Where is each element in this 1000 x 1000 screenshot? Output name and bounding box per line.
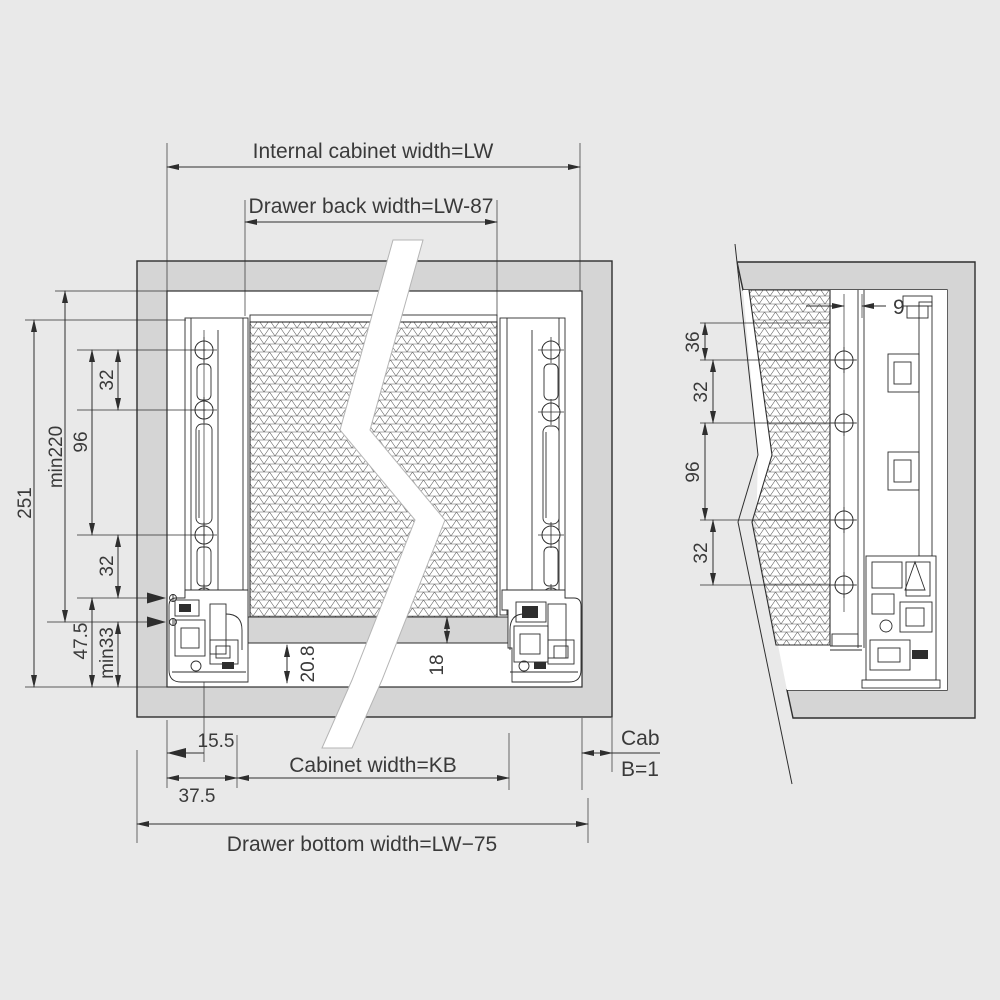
dim-47-5-label: 47.5 bbox=[71, 623, 92, 660]
side-detail-view bbox=[660, 240, 975, 786]
dim-15-5: 15.5 bbox=[167, 731, 234, 758]
dim-15-5-label: 15.5 bbox=[198, 731, 235, 752]
dim-32-bottom-label: 32 bbox=[97, 555, 118, 576]
left-slide-mechanism bbox=[169, 590, 248, 682]
main-section-view bbox=[137, 240, 612, 762]
dim-18-label: 18 bbox=[427, 654, 448, 675]
dim-96-label: 96 bbox=[71, 431, 92, 452]
technical-drawing-page: Internal cabinet width=LW Drawer back wi… bbox=[0, 0, 1000, 1000]
internal-cabinet-width-label: Internal cabinet width=LW bbox=[253, 140, 494, 163]
right-slide-mechanism bbox=[502, 590, 581, 682]
right-slide-rail bbox=[500, 318, 565, 615]
dim-32-top-label: 32 bbox=[97, 369, 118, 390]
drawer-back-width-label: Drawer back width=LW-87 bbox=[249, 195, 494, 218]
dim-internal-cabinet-width: Internal cabinet width=LW bbox=[167, 140, 580, 167]
dim-37-5: 37.5 bbox=[167, 778, 237, 807]
dim-drawer-back-width: Drawer back width=LW-87 bbox=[245, 195, 497, 222]
side-slide-mechanism bbox=[862, 556, 940, 688]
dim-36-label: 36 bbox=[683, 331, 704, 352]
dim-251-label: 251 bbox=[15, 487, 36, 519]
drawer-installation-diagram: Internal cabinet width=LW Drawer back wi… bbox=[0, 0, 1000, 1000]
cabinet-width-label: Cabinet width=KB bbox=[289, 754, 457, 777]
dim-37-5-label: 37.5 bbox=[179, 786, 216, 807]
dim-9-label: 9 bbox=[893, 296, 905, 319]
dim-cabinet-width: Cabinet width=KB bbox=[237, 754, 509, 778]
dim-side-32-top-label: 32 bbox=[691, 381, 712, 402]
dim-drawer-bottom-width: Drawer bottom width=LW−75 bbox=[137, 824, 588, 856]
dim-min33-label: min33 bbox=[97, 627, 118, 679]
dim-side-96-label: 96 bbox=[683, 461, 704, 482]
dim-side-32-bottom-label: 32 bbox=[691, 542, 712, 563]
dim-20-8-label: 20.8 bbox=[298, 646, 319, 683]
drawer-bottom-width-label: Drawer bottom width=LW−75 bbox=[227, 833, 497, 856]
dim-min220-label: min220 bbox=[46, 426, 67, 488]
